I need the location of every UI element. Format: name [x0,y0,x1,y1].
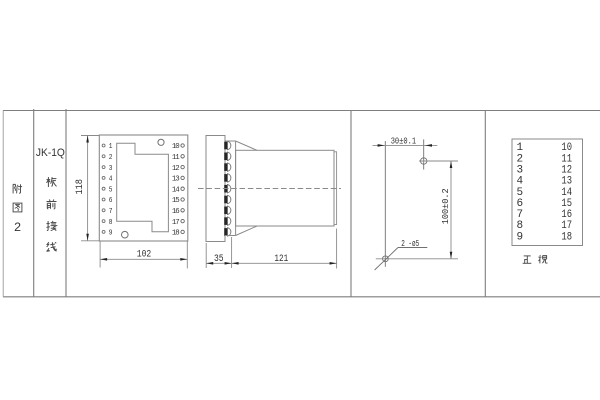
svg-text:10: 10 [172,143,179,151]
svg-text:118: 118 [75,179,86,195]
svg-text:6: 6 [517,198,524,210]
svg-text:13: 13 [172,176,179,184]
svg-text:15: 15 [561,198,572,210]
svg-text:2: 2 [14,220,21,234]
svg-text:15: 15 [172,197,179,205]
svg-text:18: 18 [172,230,179,238]
svg-text:8: 8 [517,220,524,232]
svg-text:2 -ø5: 2 -ø5 [401,238,419,249]
svg-text:9: 9 [109,230,113,238]
svg-text:17: 17 [561,220,572,232]
svg-text:3: 3 [109,165,113,173]
svg-text:35: 35 [214,254,224,265]
svg-text:7: 7 [109,208,113,216]
svg-text:121: 121 [274,254,288,265]
svg-text:5: 5 [109,186,113,194]
svg-text:2: 2 [517,153,524,165]
svg-text:30±0.1: 30±0.1 [391,135,417,146]
svg-text:18: 18 [561,231,572,243]
svg-text:102: 102 [137,250,152,261]
svg-text:9: 9 [517,231,524,243]
svg-text:1: 1 [109,143,113,151]
svg-text:11: 11 [561,153,572,165]
svg-text:17: 17 [172,219,179,227]
svg-text:2: 2 [109,154,113,162]
svg-text:6: 6 [109,197,113,205]
svg-text:13: 13 [561,176,572,188]
svg-text:12: 12 [172,165,179,173]
svg-text:JK-1Q: JK-1Q [36,147,65,159]
svg-text:100±0.2: 100±0.2 [440,188,451,224]
svg-text:16: 16 [172,208,179,216]
svg-text:4: 4 [109,176,113,184]
svg-text:4: 4 [517,176,524,188]
svg-text:8: 8 [109,219,113,227]
